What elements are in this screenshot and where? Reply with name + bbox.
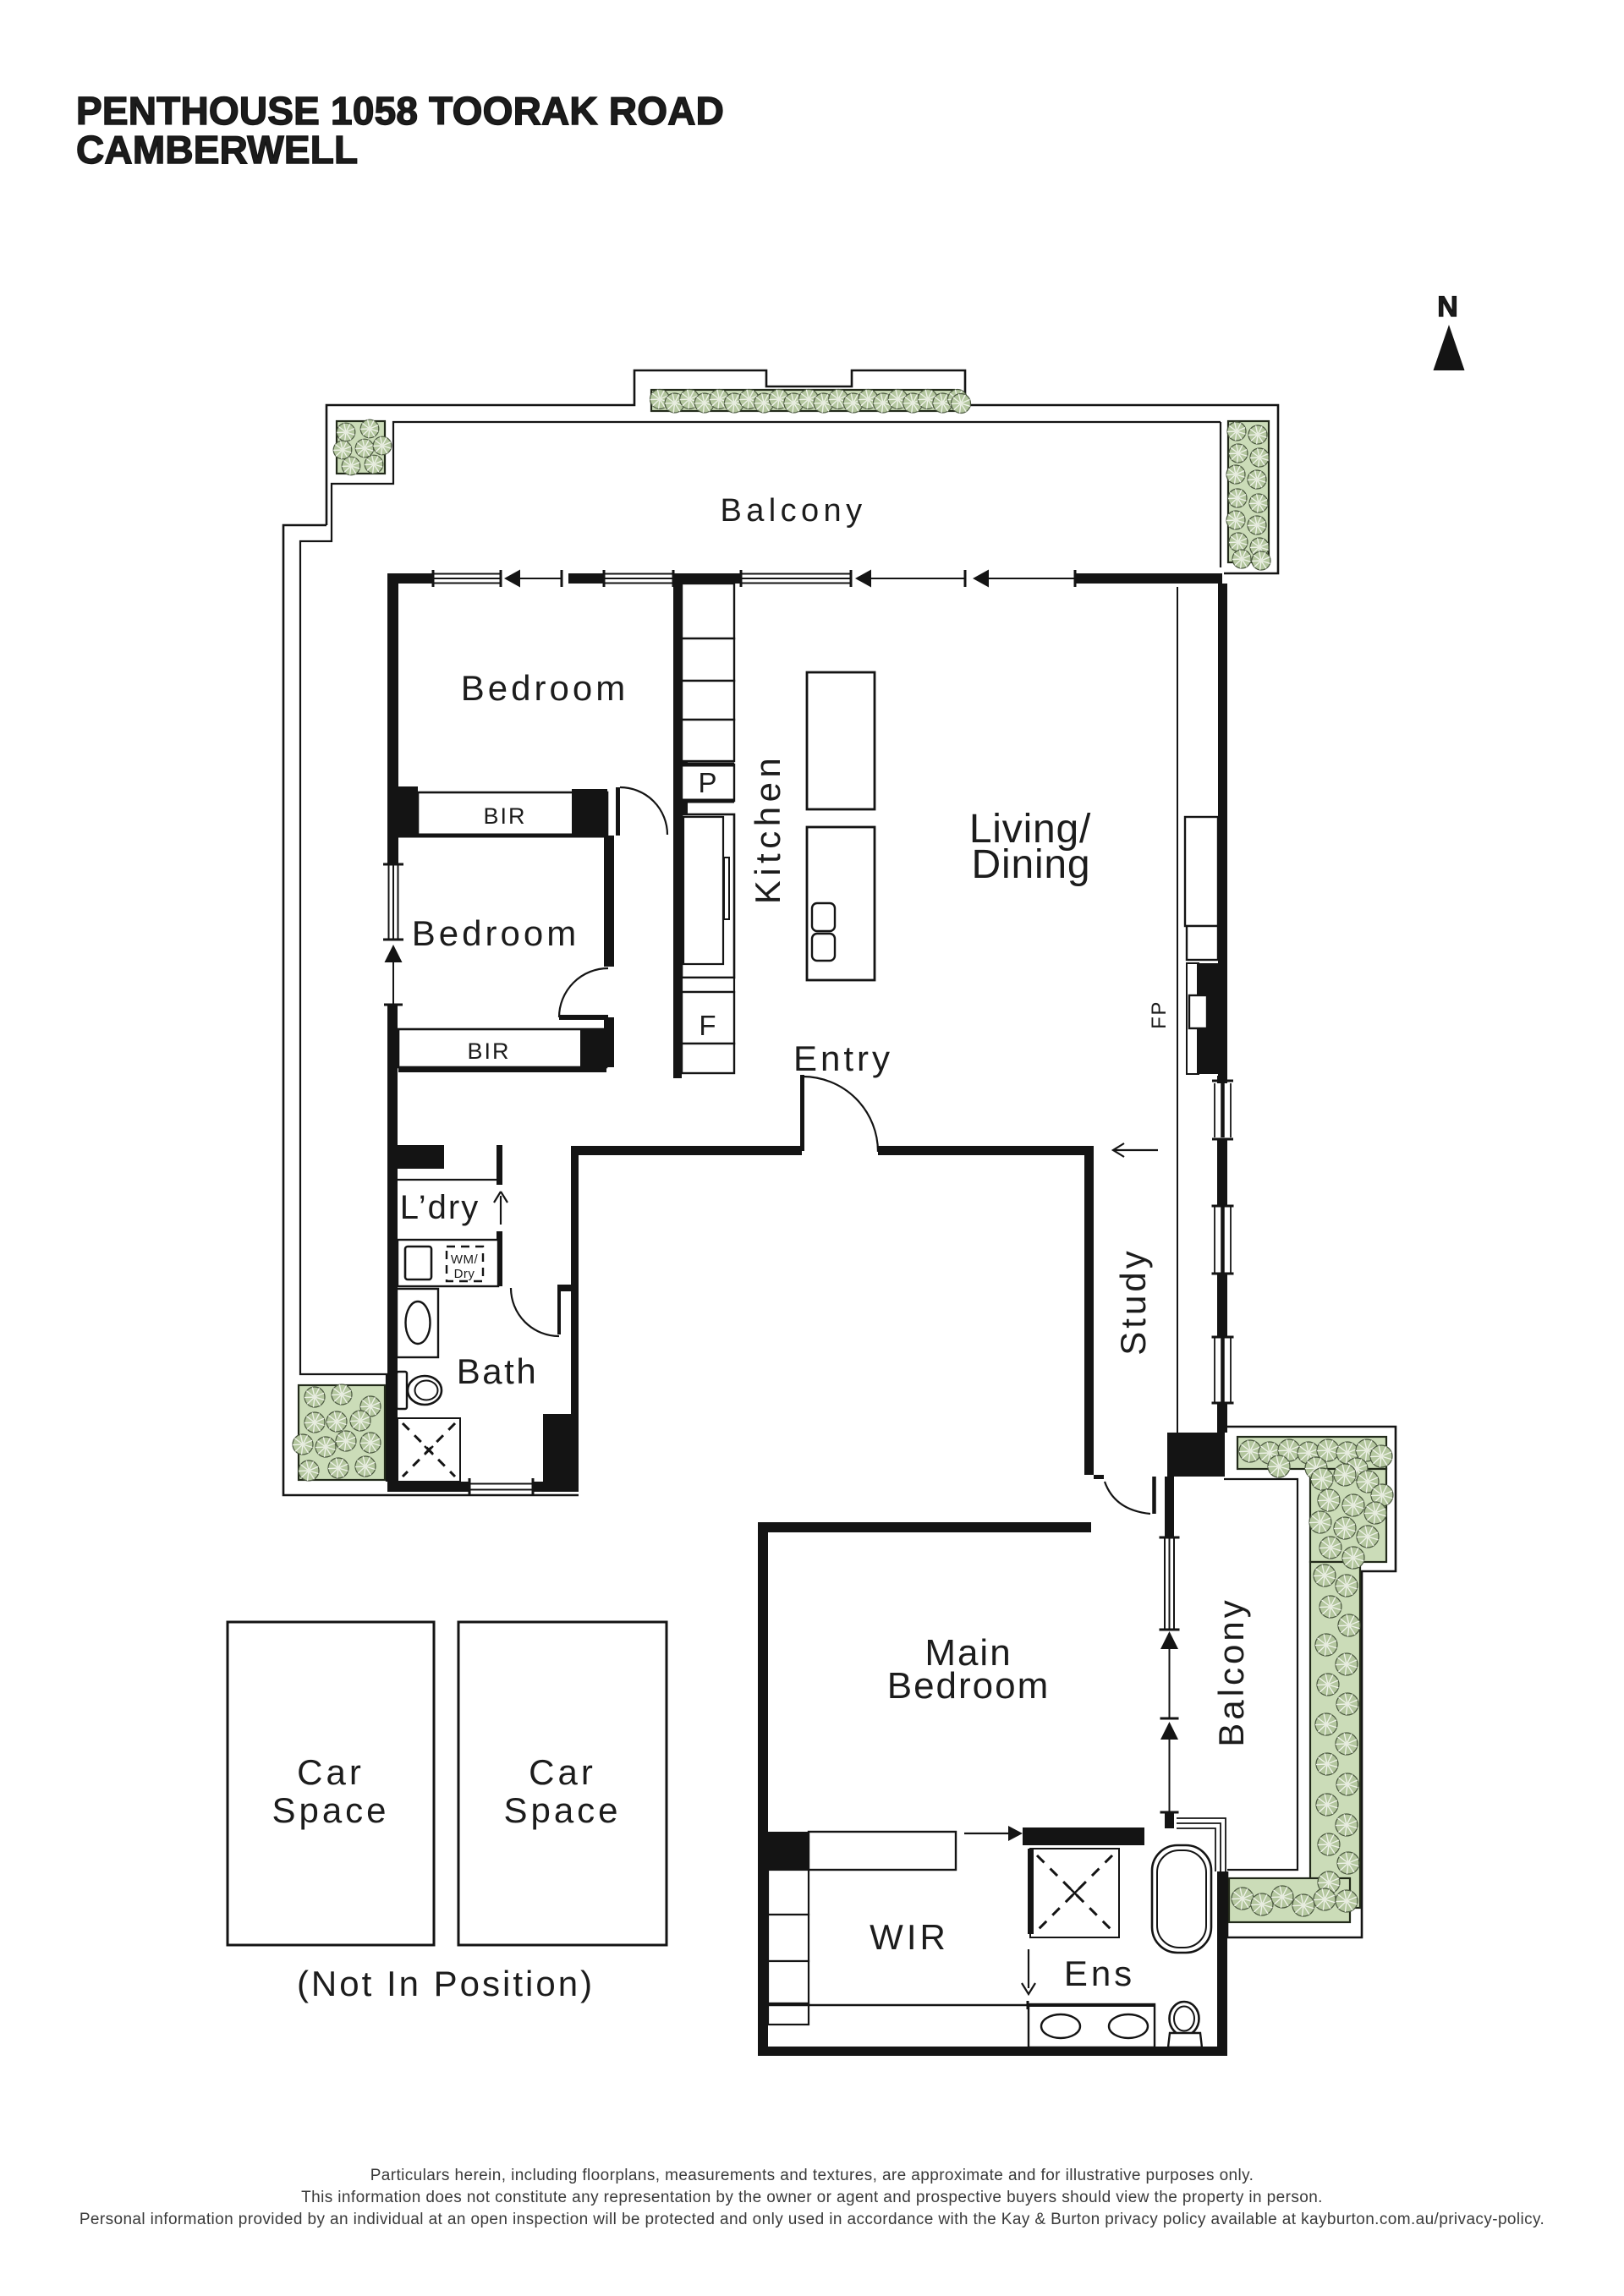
svg-text:Balcony: Balcony [1211,1597,1251,1746]
svg-text:This information does not cons: This information does not constitute any… [301,2189,1323,2206]
svg-text:Particulars herein, including: Particulars herein, including floorplans… [370,2167,1254,2184]
svg-text:PENTHOUSE 1058 TOORAK ROAD: PENTHOUSE 1058 TOORAK ROAD [76,89,724,133]
svg-text:Ens: Ens [1064,1954,1135,1993]
svg-text:Personal information provided: Personal information provided by an indi… [80,2211,1544,2228]
svg-text:WM/: WM/ [451,1252,479,1267]
svg-text:Car: Car [529,1752,596,1792]
svg-text:Dining: Dining [972,842,1091,887]
svg-text:Study: Study [1113,1247,1153,1355]
svg-text:(Not In Position): (Not In Position) [297,1964,595,2003]
svg-text:Space: Space [503,1790,621,1830]
svg-text:Bedroom: Bedroom [887,1665,1051,1707]
svg-text:Balcony: Balcony [721,493,867,529]
svg-text:Bedroom: Bedroom [461,668,628,708]
svg-text:Bedroom: Bedroom [412,913,579,953]
svg-text:Bath: Bath [457,1351,538,1391]
svg-text:CAMBERWELL: CAMBERWELL [76,128,358,172]
svg-text:N: N [1437,291,1459,323]
svg-text:Kitchen: Kitchen [748,753,787,905]
svg-text:Dry: Dry [454,1267,475,1281]
svg-text:Entry: Entry [793,1038,893,1078]
svg-text:WIR: WIR [870,1917,949,1957]
svg-text:F: F [699,1010,716,1041]
svg-text:Car: Car [297,1752,365,1792]
svg-text:Space: Space [272,1790,389,1830]
svg-text:FP: FP [1148,1000,1171,1029]
svg-text:BIR: BIR [483,803,526,829]
svg-text:BIR: BIR [467,1038,510,1064]
svg-text:L’dry: L’dry [400,1189,480,1226]
svg-text:P: P [698,767,717,798]
